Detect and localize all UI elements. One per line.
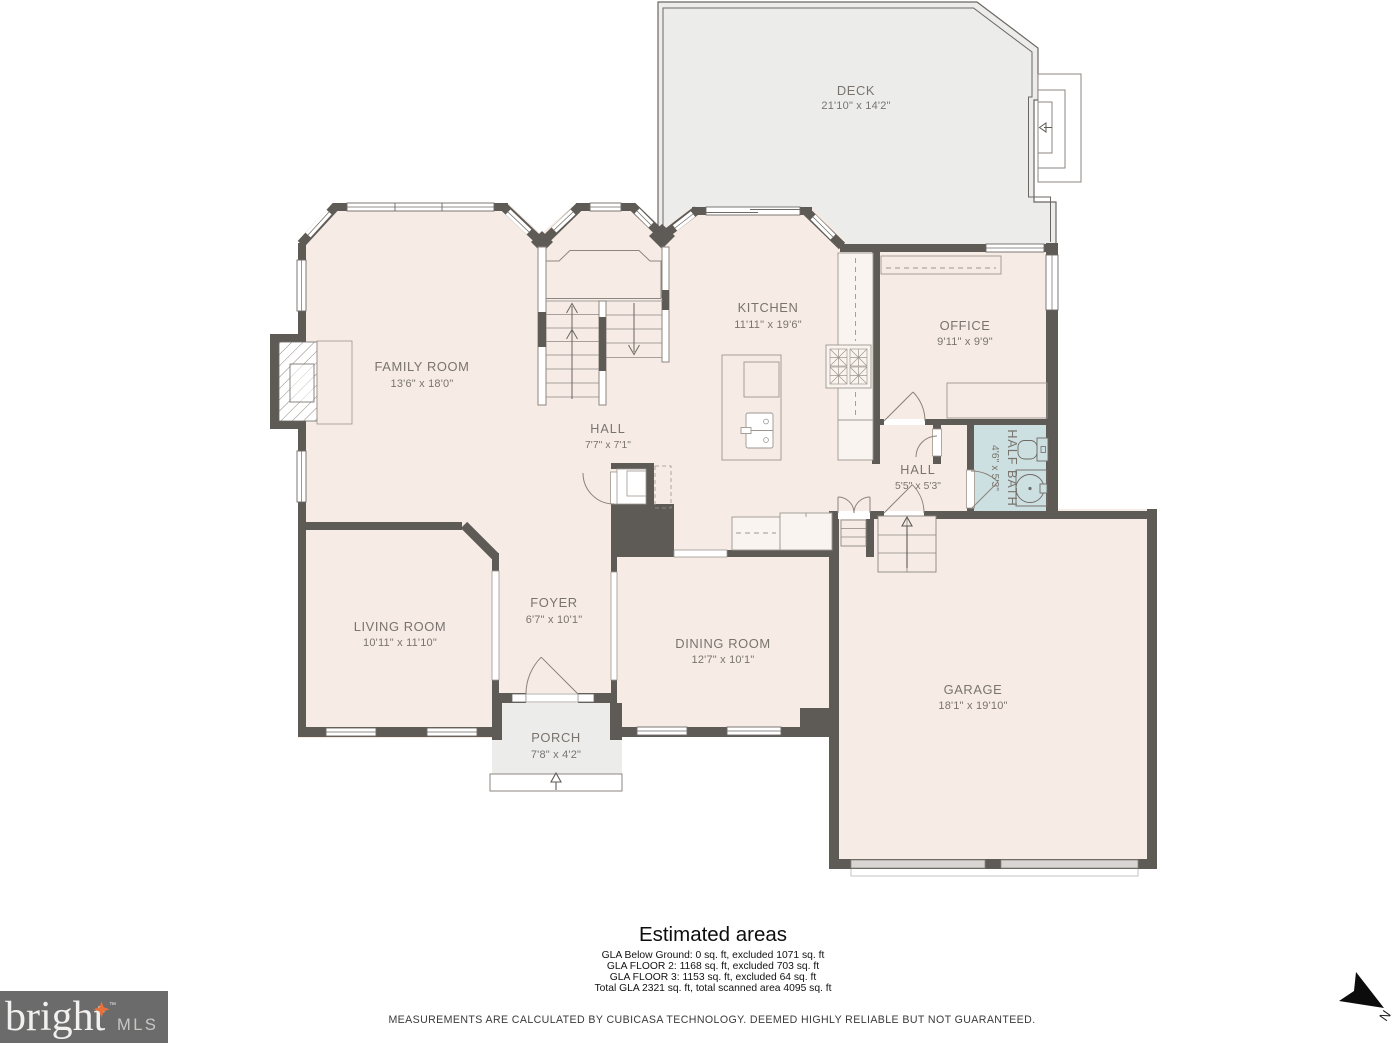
svg-text:18'1" x 19'10": 18'1" x 19'10" [938, 700, 1007, 712]
svg-text:FAMILY ROOM: FAMILY ROOM [375, 359, 470, 374]
svg-text:12'7" x 10'1": 12'7" x 10'1" [692, 654, 755, 666]
svg-text:5'5" x 5'3": 5'5" x 5'3" [895, 481, 941, 492]
svg-text:GLA FLOOR 3: 1153 sq. ft, excl: GLA FLOOR 3: 1153 sq. ft, excluded 64 sq… [610, 972, 817, 983]
svg-text:GLA FLOOR 2: 1168 sq. ft, excl: GLA FLOOR 2: 1168 sq. ft, excluded 703 s… [607, 961, 819, 972]
svg-text:MLS: MLS [117, 1016, 158, 1034]
svg-text:7'8" x 4'2": 7'8" x 4'2" [531, 749, 581, 761]
svg-text:6'7" x 10'1": 6'7" x 10'1" [526, 614, 583, 626]
svg-text:21'10" x 14'2": 21'10" x 14'2" [821, 100, 890, 112]
svg-text:™: ™ [109, 1002, 116, 1009]
svg-text:DINING ROOM: DINING ROOM [675, 636, 770, 651]
svg-text:MEASUREMENTS ARE CALCULATED BY: MEASUREMENTS ARE CALCULATED BY CUBICASA … [388, 1014, 1035, 1026]
svg-text:11'11" x 19'6": 11'11" x 19'6" [734, 319, 802, 331]
svg-text:bright: bright [5, 994, 106, 1040]
svg-text:Total GLA 2321 sq. ft, total s: Total GLA 2321 sq. ft, total scanned are… [595, 983, 832, 994]
svg-text:OFFICE: OFFICE [940, 318, 991, 333]
svg-text:HALL: HALL [590, 422, 626, 436]
svg-text:7'7" x 7'1": 7'7" x 7'1" [585, 440, 631, 451]
svg-text:DECK: DECK [837, 83, 875, 98]
svg-text:HALL: HALL [900, 463, 936, 477]
svg-text:13'6" x 18'0": 13'6" x 18'0" [391, 378, 454, 390]
svg-text:PORCH: PORCH [531, 730, 581, 745]
svg-text:KITCHEN: KITCHEN [738, 300, 799, 315]
svg-text:9'11" x 9'9": 9'11" x 9'9" [937, 336, 993, 348]
svg-text:GLA Below Ground: 0 sq. ft, ex: GLA Below Ground: 0 sq. ft, excluded 107… [602, 950, 825, 961]
svg-text:4'6" x 5'3": 4'6" x 5'3" [989, 445, 1000, 491]
svg-text:HALF BATH: HALF BATH [1005, 429, 1019, 506]
svg-text:FOYER: FOYER [530, 595, 577, 610]
svg-text:Estimated areas: Estimated areas [639, 923, 787, 946]
svg-text:GARAGE: GARAGE [944, 682, 1003, 697]
svg-text:LIVING ROOM: LIVING ROOM [354, 619, 447, 634]
svg-text:10'11" x 11'10": 10'11" x 11'10" [363, 637, 437, 649]
